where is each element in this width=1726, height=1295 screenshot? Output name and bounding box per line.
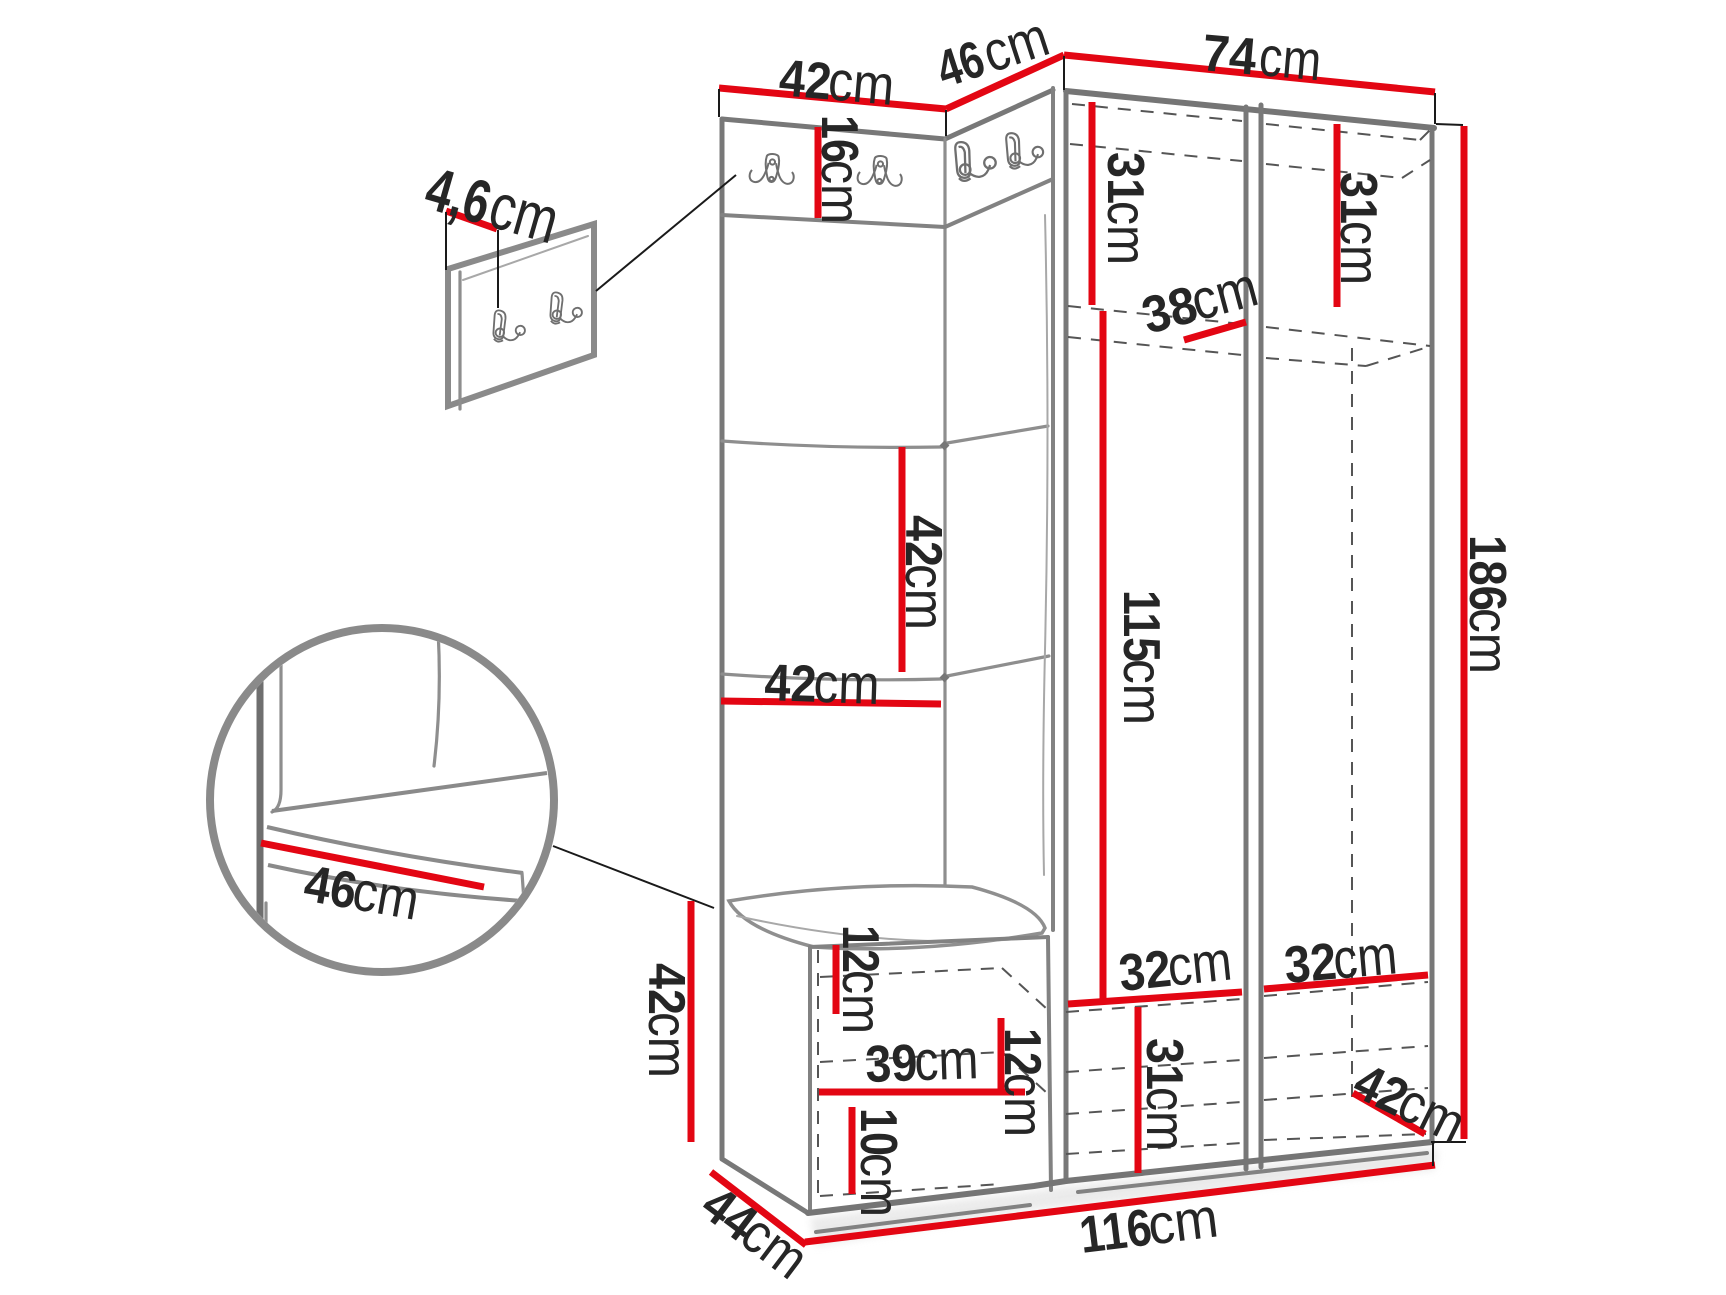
- svg-text:cm: cm: [993, 1073, 1056, 1137]
- svg-text:42: 42: [777, 49, 834, 111]
- svg-text:42: 42: [637, 963, 695, 1015]
- svg-text:32: 32: [1282, 933, 1339, 995]
- svg-text:cm: cm: [831, 970, 894, 1034]
- svg-text:cm: cm: [637, 1012, 700, 1078]
- svg-text:31: 31: [1096, 152, 1154, 204]
- svg-text:cm: cm: [894, 564, 957, 630]
- svg-text:74: 74: [1200, 24, 1259, 86]
- svg-text:cm: cm: [826, 48, 897, 117]
- svg-text:cm: cm: [1164, 928, 1234, 997]
- svg-text:cm: cm: [913, 1027, 979, 1092]
- svg-text:cm: cm: [1329, 221, 1392, 285]
- svg-text:116: 116: [1076, 1199, 1155, 1265]
- svg-text:31: 31: [1135, 1038, 1193, 1090]
- svg-text:10: 10: [849, 1108, 907, 1156]
- svg-text:186: 186: [1458, 535, 1516, 611]
- svg-text:42: 42: [764, 654, 818, 714]
- svg-text:16: 16: [810, 115, 868, 163]
- svg-text:cm: cm: [1458, 608, 1521, 674]
- svg-text:39: 39: [864, 1034, 918, 1094]
- svg-text:cm: cm: [1330, 922, 1399, 990]
- svg-text:cm: cm: [813, 651, 881, 716]
- svg-text:cm: cm: [849, 1153, 912, 1217]
- svg-text:12: 12: [993, 1028, 1051, 1076]
- svg-text:115: 115: [1112, 590, 1170, 662]
- svg-text:cm: cm: [1257, 24, 1324, 92]
- svg-text:42: 42: [894, 515, 952, 567]
- svg-text:cm: cm: [1135, 1087, 1198, 1151]
- svg-text:cm: cm: [810, 160, 873, 224]
- svg-text:cm: cm: [1144, 1185, 1221, 1256]
- svg-text:cm: cm: [348, 858, 424, 932]
- svg-text:31: 31: [1329, 172, 1387, 224]
- svg-text:cm: cm: [1096, 201, 1159, 265]
- svg-text:cm: cm: [1112, 659, 1175, 725]
- svg-text:12: 12: [831, 925, 889, 973]
